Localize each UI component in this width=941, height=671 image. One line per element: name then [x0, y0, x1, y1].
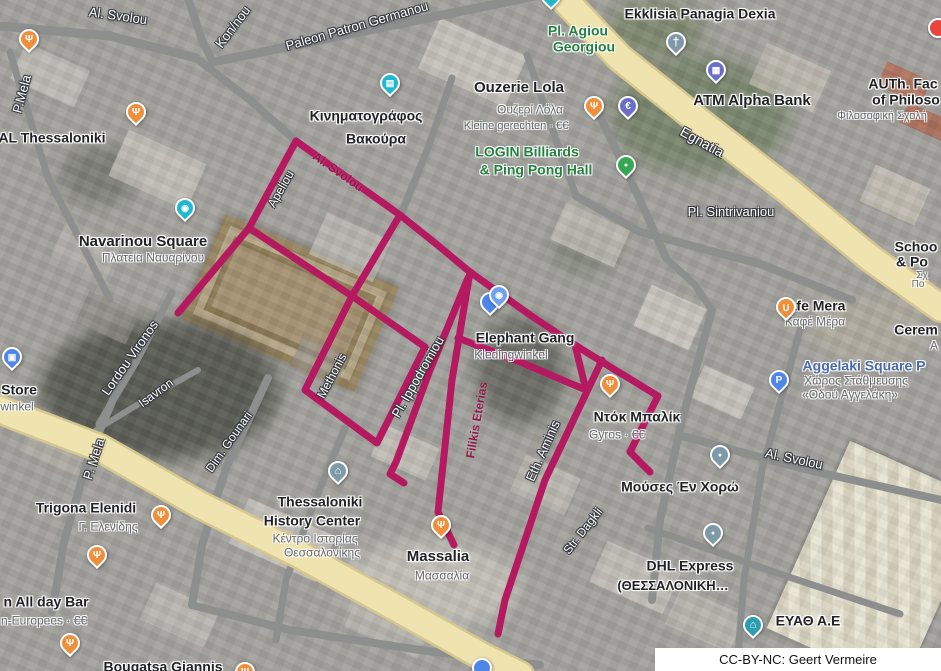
poi-label-history-center-1[interactable]: Thessaloniki: [278, 495, 363, 510]
poi-label-po-cut[interactable]: & Po: [896, 255, 928, 270]
poi-sublabel-thessalonikis: Θεσσαλονίκης: [284, 547, 360, 560]
poi-label-ping-pong-hall[interactable]: & Ping Pong Hall: [480, 163, 593, 178]
poi-label-all-day-bar-cut[interactable]: n All day Bar: [3, 595, 88, 610]
poi-sublabel-massalia: Μασσαλία: [415, 570, 469, 583]
street-label-pl-sintrivaniou: Pl. Sintrivaniou: [688, 205, 775, 219]
parking-pin-icon: P: [771, 372, 787, 388]
road: [652, 310, 712, 600]
poi-label-eyath[interactable]: ΕΥΑΘ Α.Ε: [776, 614, 841, 629]
poi-label-login-billiards[interactable]: LOGIN Billiards: [475, 145, 578, 160]
route-line[interactable]: [352, 215, 400, 296]
poi-label-aggelaki-square[interactable]: Aggelaki Square P: [803, 359, 926, 374]
poi-label-cerem-cut[interactable]: Cerem: [894, 323, 938, 338]
poi-sublabel-plateia-navarinou: Πλατεία Ναυαρίνου: [102, 252, 204, 265]
poi-sublabel-kafe-mera: Καφέ Μέρα: [785, 316, 845, 329]
poi-label-trigona-elenidi[interactable]: Trigona Elenidi: [36, 501, 136, 516]
poi-sublabel-europees-cut: n-Europees · €€: [1, 615, 87, 628]
shopping-bag-pin-icon: ▣: [4, 349, 20, 365]
poi-label-pl-agiou[interactable]: Pl. Agiou: [548, 24, 608, 39]
route-line[interactable]: [400, 215, 470, 272]
poi-label-mouses-en-xoro[interactable]: Μούσες Έν Χορώ: [621, 480, 739, 495]
restaurant-pin-icon: Ψ: [433, 517, 449, 533]
clothing-pin-icon: ◉: [491, 287, 507, 303]
poi-label-thessaloniki-cut[interactable]: (ΘΕΣΣΑΛΟΝΙΚΗ…: [617, 579, 728, 593]
road: [196, 58, 296, 141]
poi-sublabel-odou-aggelaki: «Οδού Αγγελάκη»: [802, 389, 898, 402]
eyath-museum-pin-icon: ⌂: [745, 617, 761, 633]
cinema-pin-icon: ▤: [382, 75, 398, 91]
poi-label-massalia[interactable]: Massalia: [407, 549, 470, 565]
route-line[interactable]: [178, 141, 296, 313]
route-line[interactable]: [498, 360, 602, 634]
green-dot-pin-icon: ●: [618, 157, 634, 173]
map-canvas[interactable]: Al. SvolouKon/nouPaleon Patron GermanouP…: [0, 0, 941, 671]
poi-sublabel-gyros: Gyros · €€: [589, 429, 645, 442]
attribution-text: CC-BY-NC: Geert Vermeire: [719, 652, 877, 667]
poi-sublabel-xoros-stathmeysis: Χώρος Στάθμευσης: [804, 375, 908, 388]
poi-label-cinema-vakoura-2[interactable]: Βακούρα: [346, 132, 406, 147]
restaurant-pin-cut-icon: Ψ: [237, 664, 253, 671]
poi-label-georgiou[interactable]: Georgiou: [553, 40, 615, 55]
poi-sublabel-g-elenidis: Γ. Ελενίδης: [78, 521, 137, 534]
poi-sublabel-ouzeri-lola: Ουζερί Λόλα: [497, 104, 563, 117]
poi-sublabel-po-cut: Πο: [912, 280, 925, 291]
restaurant-pin-icon: Ψ: [21, 31, 37, 47]
poi-label-school-cut[interactable]: Schoo: [895, 240, 938, 255]
poi-sublabel-kleine-gerechten: Kleine gerechten · €€: [464, 121, 569, 133]
poi-sublabel-filosofiki-sxoli: Φιλοσοφική Σχολή: [837, 111, 927, 123]
museum-pin-icon: ⌂: [330, 463, 346, 479]
restaurant-pin-icon: Ψ: [153, 507, 169, 523]
camera-pin-icon: ◉: [177, 200, 193, 216]
road: [402, 78, 452, 212]
restaurant-pin-icon: Ψ: [586, 98, 602, 114]
poi-sublabel-kledingwinkel: Kledingwinkel: [474, 349, 547, 362]
poi-label-elephant-gang[interactable]: Elephant Gang: [476, 331, 575, 346]
route-line[interactable]: [390, 278, 468, 483]
dhl-pin-icon: ●: [705, 525, 721, 541]
euro-pin-icon: €: [620, 98, 636, 114]
poi-label-auth-fac[interactable]: AUTh. Fac: [868, 77, 937, 92]
route-line[interactable]: [352, 296, 425, 347]
restaurant-pin-icon: Ψ: [602, 376, 618, 392]
road: [10, 52, 48, 178]
poi-label-al-thessaloniki[interactable]: AL Thessaloniki: [0, 131, 106, 146]
route-line[interactable]: [249, 228, 352, 296]
poi-sublabel-kentro-istorias: Κέντρο Ιστορίας: [272, 533, 357, 546]
restaurant-pin-icon: Ψ: [128, 104, 144, 120]
restaurant-pin-icon: Ψ: [62, 635, 78, 651]
road: [52, 383, 120, 612]
red-dot-marker[interactable]: [928, 18, 941, 38]
poi-label-history-center-2[interactable]: History Center: [264, 514, 360, 529]
road: [598, 112, 666, 258]
poi-label-of-philoso[interactable]: of Philoso: [872, 93, 940, 108]
poi-label-atm-alpha-bank[interactable]: ATM Alpha Bank: [693, 93, 811, 109]
cafe-pin-icon: ∪: [778, 299, 794, 315]
poi-label-ekklisia-panagia-dexia[interactable]: Ekklisia Panagia Dexia: [625, 7, 776, 22]
church-pin-icon: †: [668, 34, 684, 50]
muses-pin-icon: ●: [712, 447, 728, 463]
road: [666, 258, 712, 310]
atm-pin-icon: ▦: [708, 62, 724, 78]
poi-sublabel-a-cut: Α: [930, 340, 938, 353]
route-line[interactable]: [305, 296, 425, 443]
poi-label-navarinou-square[interactable]: Navarinou Square: [79, 234, 207, 250]
poi-label-bougatsa-giannis[interactable]: Bougatsa Giannis: [103, 660, 222, 671]
poi-label-cinema-vakoura[interactable]: Κινηματογράφος: [310, 109, 423, 124]
attribution-bar: CC-BY-NC: Geert Vermeire: [655, 648, 941, 671]
poi-sublabel-winkel: winkel: [0, 401, 33, 414]
poi-label-ntok-mpalik[interactable]: Ντόκ Μπαλίκ: [594, 410, 681, 425]
road: [213, 0, 540, 62]
poi-label-ouzerie-lola[interactable]: Ouzerie Lola: [474, 80, 564, 96]
poi-label-store[interactable]: Store: [1, 383, 37, 398]
restaurant-pin-icon: Ψ: [89, 547, 105, 563]
poi-label-dhl-express[interactable]: DHL Express: [647, 559, 734, 574]
